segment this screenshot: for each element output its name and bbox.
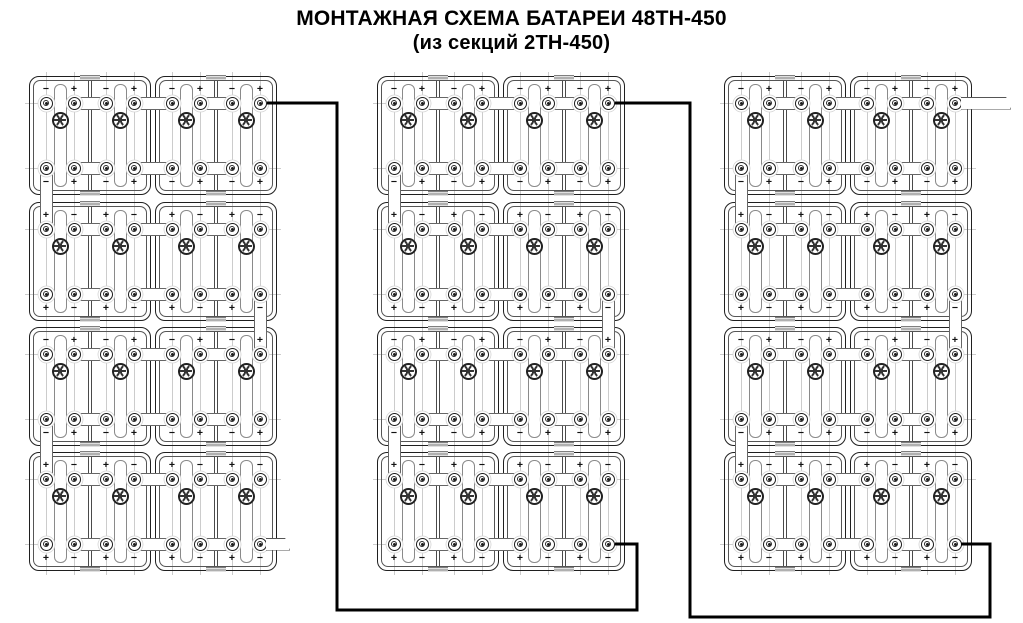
terminal-sign: + (229, 303, 235, 314)
terminal-sign: + (826, 335, 832, 346)
terminal-sign: − (826, 210, 832, 221)
vent-plug-icon (526, 363, 543, 380)
terminal (861, 413, 874, 426)
battery-column-2: −−++−−++−−++−−++++−−++−−++−−++−−−−++−−++… (377, 76, 625, 571)
vent-plug-star (875, 365, 887, 377)
terminal (889, 348, 902, 361)
terminal-center (105, 353, 108, 356)
terminal (861, 288, 874, 301)
battery-section: −−++−−++ (724, 327, 846, 446)
terminal (68, 288, 81, 301)
terminal-sign: − (826, 553, 832, 564)
terminal-center (519, 167, 522, 170)
terminal-center (954, 293, 957, 296)
terminal (476, 97, 489, 110)
vent-plug-star (528, 240, 540, 252)
terminal-center (894, 353, 897, 356)
terminal-center (519, 478, 522, 481)
terminal-center (481, 102, 484, 105)
terminal-center (199, 293, 202, 296)
terminal-sign: − (766, 460, 772, 471)
terminal (795, 538, 808, 551)
terminal-sign: + (197, 177, 203, 188)
terminal-sign: + (419, 335, 425, 346)
terminal-center (133, 293, 136, 296)
terminal (795, 223, 808, 236)
terminal (795, 97, 808, 110)
terminal-center (926, 543, 929, 546)
battery-row: ++−−++−−++−−++−− (377, 202, 625, 321)
terminal-center (768, 543, 771, 546)
terminal-center (393, 167, 396, 170)
terminal-center (73, 228, 76, 231)
section-rib-bottom (775, 442, 795, 447)
terminal-center (481, 418, 484, 421)
section-rib-bottom (428, 191, 448, 196)
terminal-sign: − (545, 210, 551, 221)
terminal (194, 413, 207, 426)
terminal (40, 413, 53, 426)
terminal-center (45, 228, 48, 231)
terminal (921, 223, 934, 236)
terminal-sign: − (131, 553, 137, 564)
terminal (226, 473, 239, 486)
terminal-sign: − (517, 177, 523, 188)
section-rib-bottom (775, 317, 795, 322)
terminal (514, 413, 527, 426)
terminal (388, 288, 401, 301)
terminal-center (828, 353, 831, 356)
terminal-center (579, 478, 582, 481)
vent-plug-star (54, 365, 66, 377)
terminal-sign: − (605, 210, 611, 221)
terminal-sign: + (864, 303, 870, 314)
terminal-sign: − (419, 553, 425, 564)
terminal (416, 97, 429, 110)
terminal-sign: − (71, 210, 77, 221)
terminal-center (73, 293, 76, 296)
vent-plug-star (588, 240, 600, 252)
terminal (949, 473, 962, 486)
terminal-sign: + (391, 460, 397, 471)
terminal (861, 473, 874, 486)
vent-plug-icon (400, 112, 417, 129)
cell-carry-strap (875, 460, 888, 563)
terminal-center (199, 228, 202, 231)
terminal-sign: + (451, 303, 457, 314)
battery-section: ++−−++−− (155, 202, 277, 321)
terminal-sign: − (738, 84, 744, 95)
battery-section: −−++−−++ (724, 76, 846, 195)
section-rib-bottom (206, 442, 226, 447)
battery-section: −−++−−++ (503, 327, 625, 446)
section-rib-top (80, 201, 100, 206)
terminal (100, 348, 113, 361)
terminal (542, 413, 555, 426)
cell-carry-strap (462, 335, 475, 438)
battery-row: ++−−++−−++−−++−− (724, 202, 972, 321)
terminal-center (453, 353, 456, 356)
terminal-center (740, 353, 743, 356)
vent-plug-icon (807, 363, 824, 380)
cell-carry-strap (180, 335, 193, 438)
cell-carry-strap (54, 210, 67, 313)
terminal-center (954, 167, 957, 170)
terminal (861, 348, 874, 361)
vent-plug-star (528, 114, 540, 126)
terminal-center (926, 293, 929, 296)
battery-section: −−++−−++ (377, 327, 499, 446)
terminal-center (954, 418, 957, 421)
terminal-sign: − (103, 428, 109, 439)
terminal (542, 538, 555, 551)
terminal (542, 162, 555, 175)
terminal-sign: − (71, 460, 77, 471)
cell-carry-strap (180, 84, 193, 187)
vent-plug-star (935, 365, 947, 377)
terminal-center (800, 543, 803, 546)
terminal (949, 288, 962, 301)
section-rib-top (554, 451, 574, 456)
terminal (448, 413, 461, 426)
terminal-sign: − (103, 177, 109, 188)
terminal-center (393, 293, 396, 296)
terminal (416, 413, 429, 426)
terminal (823, 97, 836, 110)
terminal (949, 162, 962, 175)
cell-carry-strap (749, 335, 762, 438)
battery-row: −−++−−++−−++−−++ (29, 327, 277, 446)
section-rib-top (554, 326, 574, 331)
terminal (574, 288, 587, 301)
terminal-center (105, 543, 108, 546)
terminal-center (607, 543, 610, 546)
terminal (763, 97, 776, 110)
terminal-center (866, 478, 869, 481)
section-rib-top (206, 75, 226, 80)
cell-carry-strap (180, 210, 193, 313)
vent-plug-icon (52, 488, 69, 505)
terminal-sign: + (103, 460, 109, 471)
terminal-sign: + (419, 177, 425, 188)
terminal-sign: − (766, 553, 772, 564)
terminal (602, 223, 615, 236)
terminal (226, 288, 239, 301)
terminal-center (800, 418, 803, 421)
vent-plug-star (875, 114, 887, 126)
terminal-sign: + (892, 428, 898, 439)
terminal-sign: + (605, 335, 611, 346)
terminal (388, 538, 401, 551)
terminal-center (393, 102, 396, 105)
terminal-center (171, 293, 174, 296)
terminal (795, 348, 808, 361)
vent-plug-icon (933, 238, 950, 255)
terminal (416, 162, 429, 175)
terminal (128, 162, 141, 175)
cell-carry-strap (240, 335, 253, 438)
terminal-center (453, 167, 456, 170)
terminal-center (481, 478, 484, 481)
terminal-sign: + (169, 460, 175, 471)
terminal-center (231, 478, 234, 481)
terminal-sign: + (826, 84, 832, 95)
vent-plug-icon (873, 363, 890, 380)
terminal-sign: + (479, 177, 485, 188)
terminal-center (133, 543, 136, 546)
terminal-center (768, 293, 771, 296)
terminal-sign: − (169, 177, 175, 188)
section-rib-bottom (206, 317, 226, 322)
terminal (448, 538, 461, 551)
terminal-sign: + (391, 210, 397, 221)
terminal (823, 538, 836, 551)
terminal (889, 473, 902, 486)
terminal-center (866, 167, 869, 170)
terminal (128, 413, 141, 426)
terminal-center (926, 167, 929, 170)
cell-carry-strap (528, 210, 541, 313)
terminal-center (231, 353, 234, 356)
terminal-center (481, 293, 484, 296)
terminal-center (73, 418, 76, 421)
terminal-center (421, 167, 424, 170)
terminal (823, 348, 836, 361)
terminal-sign: − (451, 335, 457, 346)
section-rib-bottom (554, 567, 574, 572)
terminal (388, 413, 401, 426)
terminal-center (828, 418, 831, 421)
terminal (128, 348, 141, 361)
section-rib-top (775, 326, 795, 331)
terminal-center (866, 543, 869, 546)
battery-section: −−++−−++ (29, 76, 151, 195)
terminal-center (171, 478, 174, 481)
terminal-center (421, 543, 424, 546)
vent-plug-icon (747, 112, 764, 129)
vent-plug-icon (586, 112, 603, 129)
terminal (735, 413, 748, 426)
vent-plug-icon (52, 238, 69, 255)
terminal-sign: − (798, 84, 804, 95)
terminal (40, 348, 53, 361)
cell-carry-strap (588, 210, 601, 313)
vent-plug-star (54, 240, 66, 252)
terminal-sign: + (71, 84, 77, 95)
terminal (921, 162, 934, 175)
terminal-center (954, 228, 957, 231)
vent-plug-star (462, 240, 474, 252)
vent-plug-icon (873, 112, 890, 129)
terminal-center (45, 167, 48, 170)
vent-plug-star (462, 114, 474, 126)
terminal (542, 288, 555, 301)
terminal-sign: + (169, 553, 175, 564)
terminal-sign: + (545, 84, 551, 95)
terminal-sign: − (103, 84, 109, 95)
terminal-sign: − (577, 335, 583, 346)
terminal (476, 162, 489, 175)
terminal-center (453, 293, 456, 296)
vent-plug-star (749, 240, 761, 252)
positive-output-lead (961, 97, 1011, 110)
terminal-sign: + (577, 303, 583, 314)
terminal-sign: − (577, 428, 583, 439)
terminal-sign: + (798, 210, 804, 221)
vent-plug-icon (460, 238, 477, 255)
terminal (602, 348, 615, 361)
vent-plug-icon (238, 112, 255, 129)
cell-carry-strap (588, 460, 601, 563)
vent-plug-star (402, 240, 414, 252)
terminal-sign: + (545, 177, 551, 188)
cell-carry-strap (588, 84, 601, 187)
terminal-center (45, 102, 48, 105)
section-rib-top (80, 326, 100, 331)
terminal (388, 348, 401, 361)
terminal (194, 473, 207, 486)
terminal-center (73, 167, 76, 170)
terminal (448, 288, 461, 301)
terminal-center (894, 293, 897, 296)
terminal (514, 288, 527, 301)
battery-section: ++−−++−− (850, 202, 972, 321)
battery-row: −−++−−++−−++−−++ (29, 76, 277, 195)
terminal-sign: − (517, 335, 523, 346)
cell-carry-strap (528, 84, 541, 187)
terminal-center (740, 478, 743, 481)
terminal-center (828, 478, 831, 481)
terminal (166, 97, 179, 110)
terminal-center (133, 353, 136, 356)
terminal (949, 413, 962, 426)
terminal (254, 223, 267, 236)
section-rib-top (428, 326, 448, 331)
terminal-center (579, 167, 582, 170)
vent-plug-icon (52, 363, 69, 380)
terminal-sign: + (924, 553, 930, 564)
terminal (100, 473, 113, 486)
cell-carry-strap (528, 335, 541, 438)
terminal-center (421, 102, 424, 105)
cell-carry-strap (54, 84, 67, 187)
terminal-sign: − (479, 460, 485, 471)
terminal (823, 413, 836, 426)
terminal-center (453, 543, 456, 546)
terminal-center (894, 167, 897, 170)
terminal (226, 162, 239, 175)
terminal-sign: − (605, 303, 611, 314)
vent-plug-icon (873, 238, 890, 255)
terminal-sign: + (103, 553, 109, 564)
cell-carry-strap (114, 460, 127, 563)
terminal-sign: + (257, 428, 263, 439)
terminal (254, 413, 267, 426)
terminal-sign: − (892, 303, 898, 314)
terminal-sign: + (826, 177, 832, 188)
vent-plug-icon (112, 488, 129, 505)
terminal (40, 223, 53, 236)
vent-plug-star (588, 490, 600, 502)
terminal-center (171, 228, 174, 231)
terminal-sign: − (892, 553, 898, 564)
cell-carry-strap (114, 210, 127, 313)
terminal-sign: − (479, 210, 485, 221)
terminal-sign: + (169, 210, 175, 221)
terminal (68, 473, 81, 486)
vent-plug-star (749, 114, 761, 126)
terminal-sign: − (43, 335, 49, 346)
vent-plug-icon (807, 112, 824, 129)
terminal-sign: − (924, 335, 930, 346)
vent-plug-star (402, 365, 414, 377)
vent-plug-star (749, 490, 761, 502)
terminal-center (133, 102, 136, 105)
terminal-sign: − (197, 210, 203, 221)
terminal-sign: + (605, 84, 611, 95)
vent-plug-icon (933, 112, 950, 129)
terminal-sign: + (197, 428, 203, 439)
vent-plug-star (809, 490, 821, 502)
terminal-sign: − (197, 303, 203, 314)
terminal-center (73, 478, 76, 481)
terminal (921, 473, 934, 486)
cell-carry-strap (462, 460, 475, 563)
terminal-center (828, 228, 831, 231)
terminal (763, 538, 776, 551)
vent-plug-star (935, 240, 947, 252)
terminal-sign: − (864, 428, 870, 439)
terminal-center (866, 353, 869, 356)
section-rib-bottom (554, 191, 574, 196)
vent-plug-star (402, 490, 414, 502)
terminal (100, 97, 113, 110)
terminal-sign: + (577, 553, 583, 564)
terminal-sign: − (798, 177, 804, 188)
terminal-sign: − (391, 428, 397, 439)
battery-row: −−++−−++−−++−−++ (724, 76, 972, 195)
terminal-center (421, 353, 424, 356)
section-rib-top (901, 75, 921, 80)
section-rib-bottom (775, 567, 795, 572)
terminal (476, 223, 489, 236)
terminal-center (800, 167, 803, 170)
terminal-sign: − (257, 303, 263, 314)
terminal-center (519, 543, 522, 546)
terminal (542, 348, 555, 361)
section-rib-top (554, 75, 574, 80)
terminal (388, 162, 401, 175)
terminal (128, 97, 141, 110)
terminal-center (607, 228, 610, 231)
vent-plug-star (875, 240, 887, 252)
terminal (949, 348, 962, 361)
terminal (602, 288, 615, 301)
battery-section: −−++−−++ (155, 327, 277, 446)
terminal-sign: + (419, 84, 425, 95)
terminal-center (607, 102, 610, 105)
vent-plug-star (240, 365, 252, 377)
terminal-center (105, 228, 108, 231)
terminal-sign: − (924, 84, 930, 95)
terminal (476, 348, 489, 361)
terminal-sign: − (766, 210, 772, 221)
terminal-sign: + (952, 84, 958, 95)
terminal-sign: − (103, 335, 109, 346)
cell-carry-strap (462, 84, 475, 187)
terminal-sign: + (798, 553, 804, 564)
terminal-sign: + (738, 460, 744, 471)
